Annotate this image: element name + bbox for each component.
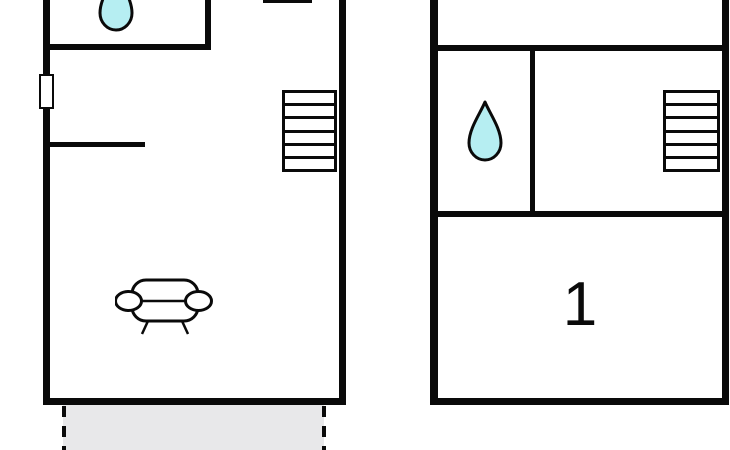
right-unit-wall-right-outer bbox=[722, 0, 729, 405]
stair-tread bbox=[285, 106, 334, 119]
left-unit-bathroom-wall-bottom bbox=[46, 44, 211, 50]
left-unit-wall-bottom bbox=[43, 398, 346, 405]
right-unit-wall-left-outer bbox=[430, 0, 438, 405]
stair-tread bbox=[666, 159, 717, 169]
bedroom-1-label: 1 bbox=[563, 269, 597, 340]
terrace bbox=[63, 405, 324, 450]
left-unit-bathroom-wall-right bbox=[205, 0, 211, 50]
floor-plan-canvas: 1 bbox=[0, 0, 730, 450]
stairs-right-unit bbox=[663, 90, 720, 172]
left-unit-wall-right-outer bbox=[339, 0, 346, 405]
stair-tread bbox=[666, 106, 717, 119]
left-unit bbox=[0, 0, 365, 450]
stair-tread bbox=[285, 146, 334, 159]
sofa-icon bbox=[115, 277, 213, 335]
right-unit: 1 bbox=[365, 0, 730, 450]
water-drop-shape bbox=[469, 102, 501, 160]
water-drop-icon bbox=[467, 100, 503, 162]
stairs-left-unit bbox=[282, 90, 337, 172]
water-drop-icon bbox=[98, 0, 134, 32]
stair-tread bbox=[666, 146, 717, 159]
stair-tread bbox=[285, 159, 334, 169]
left-unit-wall-left-outer bbox=[43, 0, 50, 405]
stair-tread bbox=[666, 119, 717, 132]
terrace-dash-right bbox=[322, 406, 326, 450]
bedroom-1: 1 bbox=[438, 217, 722, 392]
terrace-dash-left bbox=[62, 406, 66, 450]
stair-tread bbox=[666, 133, 717, 146]
left-unit-wall-interior-stub bbox=[46, 142, 145, 147]
water-drop-shape bbox=[100, 0, 132, 30]
stair-tread bbox=[666, 93, 717, 106]
stair-tread bbox=[285, 133, 334, 146]
right-unit-wall-top bbox=[430, 45, 729, 51]
left-unit-wall-top-fragment bbox=[263, 0, 312, 3]
window bbox=[39, 74, 54, 109]
stair-tread bbox=[285, 119, 334, 132]
right-unit-wall-bottom bbox=[430, 398, 729, 405]
stair-tread bbox=[285, 93, 334, 106]
right-unit-wall-interior-vertical bbox=[530, 45, 535, 217]
